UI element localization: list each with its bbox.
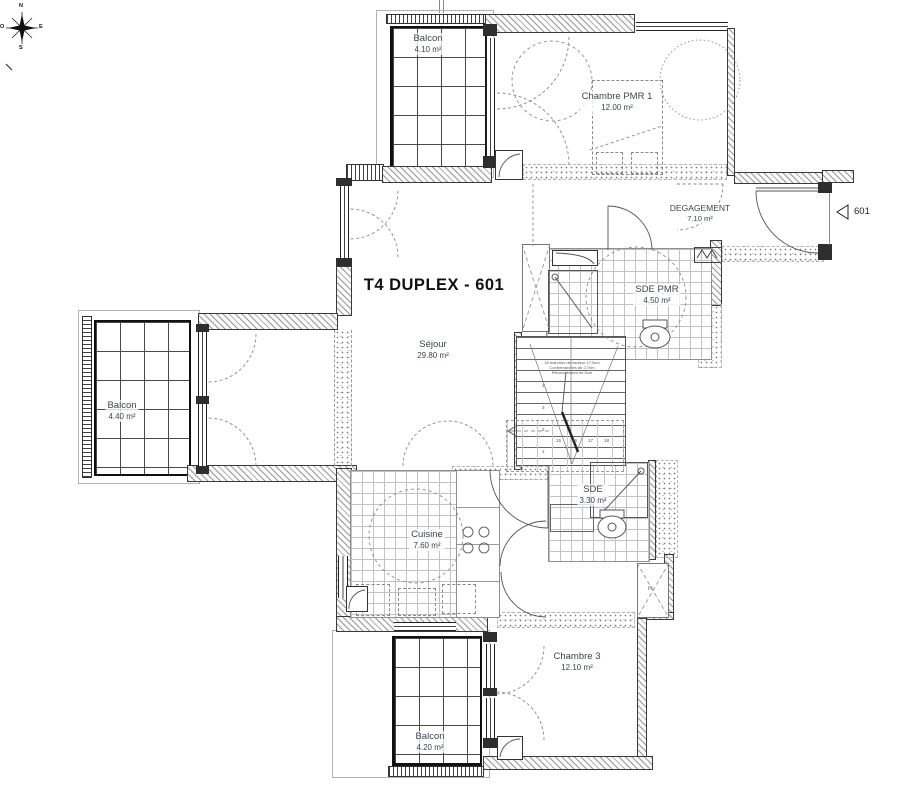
stair-number: 1 (542, 449, 545, 454)
balcony-left-floor (94, 320, 191, 476)
room-label-cuisine: Cuisine 7.60 m² (409, 529, 445, 551)
shutter-box (495, 150, 523, 180)
beam-overhead-band (334, 330, 352, 466)
unit-marker: 601 (854, 206, 870, 217)
stair-number: 16 (572, 438, 577, 443)
room-area: 7.60 m² (411, 541, 443, 551)
room-area: 3.30 m² (579, 496, 606, 506)
wall (485, 14, 635, 33)
window (394, 622, 456, 631)
window (198, 332, 207, 396)
wall (382, 166, 492, 183)
room-label-sde-pmr: SDE PMR 4.50 m² (633, 284, 680, 306)
stair-number: 4 (542, 383, 545, 388)
room-label-chambre-3: Chambre 3 12.10 m² (552, 651, 603, 673)
room-label-degagement: DEGAGEMENT 7.10 m² (668, 203, 732, 223)
compass-icon (6, 12, 38, 70)
wall-post (196, 396, 209, 404)
railing (82, 316, 92, 478)
wall (336, 266, 352, 316)
stair-number: 18 (604, 438, 609, 443)
room-name: Cuisine (411, 529, 443, 541)
stipple-band (722, 246, 824, 262)
compass-east-label: E (39, 24, 43, 30)
window (486, 38, 495, 156)
window (486, 698, 495, 738)
stair-number: 2 (542, 427, 545, 432)
room-label-sejour: Séjour 29.80 m² (415, 339, 451, 361)
room-name: SDE PMR (635, 284, 678, 296)
wall-post (483, 688, 497, 696)
wall (734, 172, 830, 184)
wall (187, 465, 357, 482)
room-area: 12.00 m² (582, 103, 653, 113)
wall-post (336, 178, 352, 186)
window (486, 644, 495, 688)
room-area: 12.10 m² (554, 663, 601, 673)
window (198, 404, 207, 466)
appliance-dashed (398, 588, 436, 616)
appliance-dashed (442, 584, 476, 614)
furniture-dashed (631, 152, 658, 174)
stair-number: 15 (556, 438, 561, 443)
shutter-box (497, 736, 523, 760)
wall-post (818, 182, 832, 193)
room-label-chambre-pmr1: Chambre PMR 1 12.00 m² (580, 91, 655, 113)
room-area: 4.50 m² (635, 296, 678, 306)
wall-post (336, 258, 352, 266)
furniture-dashed (596, 152, 623, 174)
room-area: 4.20 m² (415, 743, 444, 753)
stair-note-line: Recouvrement de 5cm (544, 370, 599, 375)
room-label-balcon-left: Balcon 4.40 m² (105, 400, 138, 422)
room-name: DEGAGEMENT (670, 203, 730, 214)
wall (637, 618, 647, 758)
window (636, 22, 728, 31)
room-name: SDE (579, 484, 606, 496)
room-area: 4.40 m² (107, 412, 136, 422)
room-area: 29.80 m² (417, 351, 449, 361)
washbasin (550, 504, 594, 532)
plan-title: T4 DUPLEX - 601 (364, 276, 504, 295)
room-name: Balcon (413, 33, 442, 45)
unit-entry-triangle-icon (837, 205, 848, 219)
stipple-band (497, 612, 635, 628)
room-name: Balcon (107, 400, 136, 412)
stair-number: 17 (588, 438, 593, 443)
doorway-edge (829, 193, 830, 245)
wall-post (818, 244, 832, 260)
wall-post (483, 738, 497, 748)
wall (198, 313, 338, 330)
shutter-box (346, 586, 368, 612)
wall-post (483, 24, 497, 36)
floor-plan: T4 DUPLEX - 601 Balcon 4.10 m² Chambre P… (0, 0, 906, 800)
window (340, 186, 349, 258)
room-name: Balcon (415, 731, 444, 743)
compass-west-label: O (0, 24, 4, 30)
washbasin (552, 250, 598, 266)
room-name: Chambre PMR 1 (582, 91, 653, 103)
stair-note: 18 marches de hauteur 17,5cm Contremarch… (544, 360, 599, 376)
compass-north-label: N (19, 3, 23, 9)
room-label-sde: SDE 3.30 m² (577, 484, 608, 506)
shower (548, 270, 598, 334)
wall-post (483, 632, 497, 642)
room-label-balcon-top: Balcon 4.10 m² (411, 33, 444, 55)
compass-south-label: S (19, 45, 23, 51)
railing (388, 766, 484, 777)
railing (386, 14, 488, 24)
stipple-band (656, 460, 678, 558)
wall (727, 28, 735, 176)
closet-under-stairs (522, 244, 550, 332)
room-label-balcon-bottom: Balcon 4.20 m² (413, 731, 446, 753)
stair-number: 3 (542, 405, 545, 410)
wall-post (196, 466, 209, 474)
radiator (694, 247, 722, 263)
room-name: Séjour (417, 339, 449, 351)
room-area: 4.10 m² (413, 45, 442, 55)
room-name: Chambre 3 (554, 651, 601, 663)
room-area: 7.10 m² (670, 214, 730, 223)
placard-label: PL (648, 586, 654, 592)
wall-post (196, 324, 209, 332)
